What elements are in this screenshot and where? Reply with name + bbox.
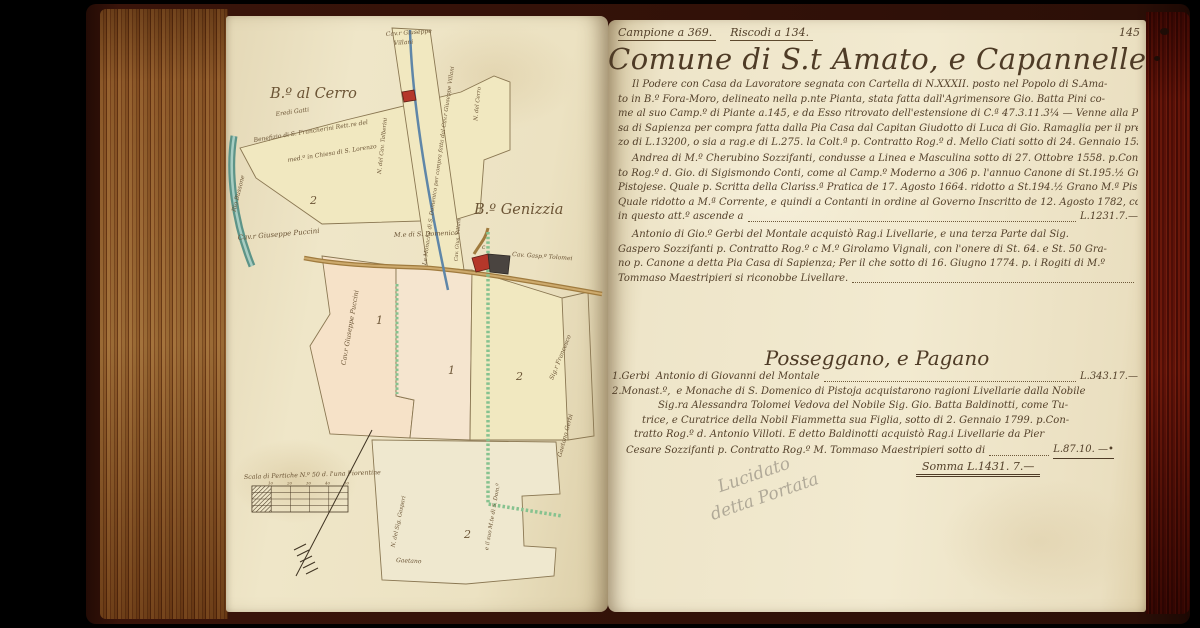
text-line: to in B.º Fora-Moro, delineato nella p.n… — [618, 93, 1105, 108]
section-entries: 1.Gerbi Antonio di Giovanni del Montale … — [612, 370, 1138, 459]
page-number: 145 — [1119, 26, 1140, 39]
header-riscodi: Riscodi a 134. — [730, 26, 813, 41]
parcel-number: 1 — [376, 314, 383, 327]
text-line: Pistojese. Quale p. Scritta della Claris… — [618, 181, 1138, 196]
puccini-top-label: Cav.r Giuseppe Puccini — [237, 227, 319, 242]
text-line: Il Podere con Casa da Lavoratore segnata… — [618, 78, 1107, 93]
road-spur — [474, 228, 488, 254]
scale-tick: 40 — [324, 481, 331, 486]
parcel-2a — [470, 270, 568, 440]
strip-owner-2: Villani — [394, 39, 414, 47]
building-genizzia-dark — [488, 254, 510, 274]
paragraph-1: Il Podere con Casa da Lavoratore segnata… — [618, 78, 1138, 151]
text-line: Quale ridotto a M.ª Corrente, e quindi a… — [618, 196, 1138, 211]
margin-label: 1.Gerbi — [612, 370, 650, 385]
page-header: Campione a 369. Riscodi a 134. — [618, 26, 1136, 41]
right-page: Campione a 369. Riscodi a 134. 145 Comun… — [608, 20, 1146, 612]
amount-value: L.343.17.— — [1080, 370, 1138, 385]
district-cerro-label: B.º al Cerro — [269, 86, 357, 102]
text-line: e Monache di S. Domenico di Pistoja acqu… — [676, 385, 1085, 400]
text-line: Antonio di Giovanni del Montale — [656, 370, 820, 385]
map-svg: B.º al Cerro B.º Genizzia Eredi Gatti Be… — [226, 16, 608, 612]
north-arrow — [294, 430, 372, 576]
text-line: no p. Canone a detta Pia Casa di Sapienz… — [618, 257, 1105, 272]
left-page-stack-edge — [100, 9, 228, 619]
text-line: Gaspero Sozzifanti p. Contratto Rog.º c … — [618, 243, 1107, 258]
page-title: Comune di S.t Amato, e Capannelle — [608, 42, 1146, 76]
left-page: B.º al Cerro B.º Genizzia Eredi Gatti Be… — [226, 16, 608, 612]
scale-tick: 10 — [268, 481, 274, 486]
text-line: Andrea di M.º Cherubino Sozzifanti, cond… — [618, 152, 1138, 167]
parcel-number: 2 — [309, 194, 317, 207]
text-line: tratto Rog.º d. Antonio Villoti. E detto… — [634, 428, 1044, 443]
margin-label: 2.Monast.º, — [612, 385, 670, 400]
text-line: zo di L.13200, o sia a rag.e di L.275. l… — [618, 136, 1138, 151]
edge-speck — [1160, 28, 1169, 35]
scale-tick: 20 — [286, 481, 293, 486]
paragraph-2: Andrea di M.º Cherubino Sozzifanti, cond… — [618, 152, 1138, 225]
sum-value: L.1431. 7.— — [967, 460, 1034, 473]
photo-of-open-register: B.º al Cerro B.º Genizzia Eredi Gatti Be… — [0, 0, 1200, 628]
scale-label: Scala di Pertiche N.º 50 d. l'una Fioren… — [244, 469, 381, 481]
cerro-note1: Eredi Gatti — [274, 106, 309, 118]
text-line: in questo att.º ascende a — [618, 210, 744, 225]
right-page-stack-edge — [1146, 12, 1190, 614]
text-line: Tommaso Maestripieri si riconobbe Livell… — [618, 272, 848, 287]
edge-speck — [1154, 56, 1160, 61]
section-heading: Posseggano, e Pagano — [608, 346, 1146, 370]
tolomei-label: Cav. Gasp.º Tolomei — [512, 251, 573, 262]
header-campione: Campione a 369. — [618, 26, 716, 41]
parcel-number: 2 — [515, 370, 523, 383]
amount-value: L.1231.7.— — [1080, 210, 1138, 225]
text-line: sa di Sapienza per compra fatta dalla Pi… — [618, 122, 1138, 137]
paragraph-3: Antonio di Gio.º Gerbi del Montale acqui… — [618, 228, 1138, 286]
building-letter: c — [482, 244, 486, 251]
scale-tick: 30 — [306, 481, 312, 486]
text-line: trice, e Curatrice della Nobil Fiammetta… — [642, 414, 1069, 429]
parcel-number: 2 — [463, 528, 471, 541]
text-line: me al suo Camp.º di Piante a.145, e da E… — [618, 107, 1138, 122]
text-line: to Rog.º d. Gio. di Sigismondo Conti, co… — [618, 167, 1138, 182]
text-line: Antonio di Gio.º Gerbi del Montale acqui… — [618, 228, 1069, 243]
sum-line: Somma L.1431. 7.— — [916, 460, 1040, 477]
sum-label: Somma — [922, 460, 964, 473]
parcel-number: 1 — [448, 364, 455, 377]
building-strip-red — [402, 90, 416, 102]
amount-value: L.87.10. —• — [1053, 443, 1114, 459]
text-line: Sig.ra Alessandra Tolomei Vedova del Nob… — [658, 399, 1068, 414]
scale-bar: Scala di Pertiche N.º 50 d. l'una Fioren… — [244, 469, 381, 512]
bottom-center-label: Gaetano — [396, 557, 422, 565]
district-genizzia-label: B.º Genizzia — [473, 202, 563, 218]
